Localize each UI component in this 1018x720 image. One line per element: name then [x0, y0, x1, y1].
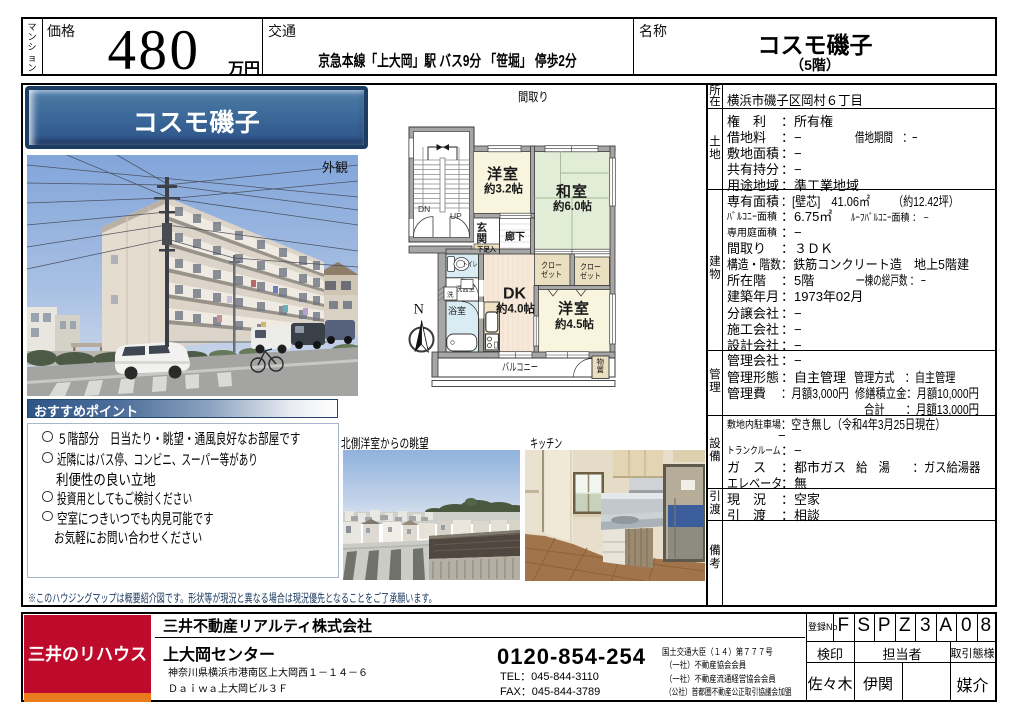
- svg-text:洋室: 洋室: [558, 300, 590, 318]
- svg-text:和室: 和室: [556, 183, 588, 201]
- svg-text:下足入: 下足入: [477, 246, 496, 254]
- svg-text:洗: 洗: [447, 290, 454, 299]
- svg-text:関: 関: [477, 233, 488, 245]
- svg-text:置: 置: [597, 366, 605, 375]
- svg-text:約4.5帖: 約4.5帖: [555, 317, 594, 331]
- svg-text:約6.0帖: 約6.0帖: [553, 199, 592, 213]
- svg-text:DN: DN: [418, 204, 430, 214]
- svg-text:クロー: クロー: [541, 261, 562, 270]
- svg-text:約4.0帖: 約4.0帖: [496, 302, 535, 316]
- svg-text:トイレ: トイレ: [463, 260, 478, 269]
- svg-text:ゼット: ゼット: [580, 271, 601, 281]
- svg-text:N: N: [414, 302, 425, 318]
- svg-text:廊下: 廊下: [505, 230, 525, 243]
- svg-text:クロー: クロー: [580, 263, 601, 272]
- svg-text:浴室: 浴室: [448, 305, 466, 316]
- svg-text:洋室: 洋室: [487, 165, 519, 183]
- svg-text:DK: DK: [503, 286, 527, 303]
- svg-text:ゼット: ゼット: [541, 269, 562, 279]
- svg-text:バルコニー: バルコニー: [502, 362, 538, 374]
- svg-text:約3.2帖: 約3.2帖: [484, 182, 523, 196]
